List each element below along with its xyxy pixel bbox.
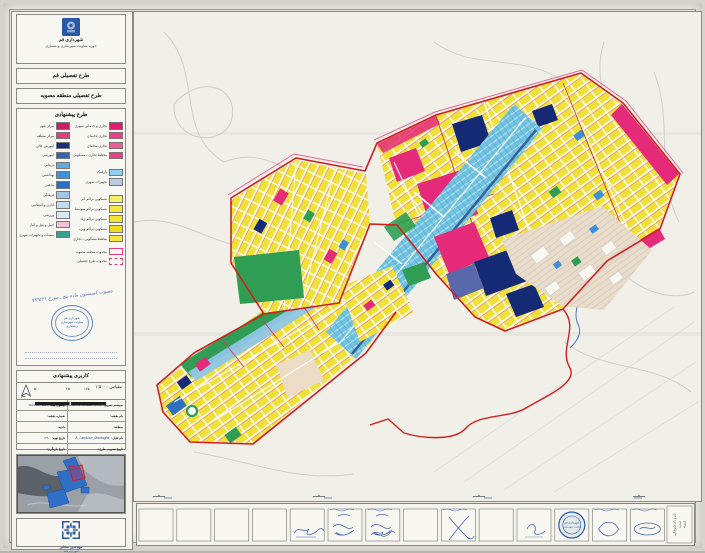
legend-color-swatch	[56, 181, 70, 189]
legend-item-label: درمانی	[44, 163, 54, 167]
title-block-sidebar: شهرداری قم حوزه معاونت شهرسازی و معماری …	[11, 11, 133, 550]
info-label: ناحیه:	[57, 425, 65, 429]
info-table-title: کاربری پیشنهادی	[17, 371, 125, 383]
info-table-cell: منطقه:	[67, 422, 125, 432]
zoning-map-drawing	[134, 12, 701, 501]
info-table-row: نام فایل:A_Landuse_Mantagheتاریخ تهیه:۱۳…	[17, 433, 125, 444]
legend-item: تجهیزات شهری	[72, 178, 123, 186]
info-table-cell: ناحیه:	[17, 422, 67, 432]
legend-color-swatch	[109, 248, 123, 256]
legend-item: اداری و انتظامی	[19, 201, 70, 209]
legend-item-label: پارکینگ	[97, 170, 107, 174]
svg-text:امضاء: امضاء	[683, 521, 687, 529]
plan-title-sub: طرح تفصیلی منطقه مصوبه	[16, 88, 126, 104]
info-label: نام فایل:	[111, 436, 123, 440]
legend-color-swatch	[56, 132, 70, 140]
scanned-map-photo: شهرداری قم حوزه معاونت شهرسازی و معماری …	[0, 0, 705, 551]
municipality-header: شهرداری قم حوزه معاونت شهرسازی و معماری	[16, 14, 126, 64]
scale-tick: ۵۰۰	[34, 387, 39, 391]
municipality-emblem-icon	[62, 18, 80, 36]
info-value: A_Landuse_Mantaghe	[75, 436, 109, 440]
legend-item: تجاری محله‌ای	[72, 142, 123, 150]
legend-item: مسکونی تراکم ویژه	[72, 225, 123, 233]
legend-color-swatch	[56, 122, 70, 130]
legend-color-swatch	[56, 171, 70, 179]
info-label: نام نقشه:	[110, 414, 123, 418]
strip-round-stamp: شهرداری قم معاونت شهرسازی	[559, 512, 585, 538]
svg-text:معاونت شهرسازی: معاونت شهرسازی	[563, 526, 581, 529]
legend-item-label: مذهبی	[45, 183, 54, 187]
legend-item: مرکز شهر	[19, 122, 70, 130]
info-table-row: منطقه:ناحیه:	[17, 422, 125, 433]
info-table-cell: تاریخ تصویب طرح:	[67, 444, 125, 454]
info-label: منطقه:	[113, 425, 123, 429]
scale-bar	[35, 393, 107, 411]
legend-item-label: مسکونی تراکم زیاد	[80, 217, 107, 221]
legend-color-swatch	[109, 142, 123, 150]
stamp-line: و معماری	[66, 325, 78, 329]
scale-label: مقیاس ۱:۵۰۰۰	[95, 384, 122, 390]
legend-color-swatch	[56, 142, 70, 150]
locator-inset-map	[16, 454, 126, 514]
legend-item: مذهبی	[19, 181, 70, 189]
legend-footnote-rule	[25, 358, 117, 359]
legend-color-swatch	[109, 132, 123, 140]
scale-tick: ۰	[103, 387, 105, 391]
legend-item: مسکونی تراکم کم	[72, 195, 123, 203]
legend-item-label: مرکز منطقه	[37, 134, 54, 138]
legend-color-swatch	[56, 191, 70, 199]
legend-color-swatch	[109, 122, 123, 130]
legend-color-swatch	[56, 221, 70, 229]
legend-item-label: مختلط مسکونی ـ تجاری	[73, 237, 107, 241]
info-label: تاریخ بازنگری:	[46, 447, 65, 451]
legend-item-label: مختلط تجاری ـ مسکونی	[73, 153, 107, 157]
legend-item: مسکونی تراکم متوسط	[72, 205, 123, 213]
legend-item-label: آموزشی	[42, 153, 54, 157]
info-table-panel: کاربری پیشنهادی مقیاس ۱:۵۰۰۰ ۵۰۰ ۲۵۰ ۱۲۵…	[16, 370, 126, 450]
legend-item-label: آموزش عالی	[36, 144, 54, 148]
legend-item: پارکینگ	[72, 169, 123, 177]
info-table-cell: شماره نقشه:	[17, 411, 67, 421]
legend-item: بهداشتی	[19, 171, 70, 179]
legend-item-label: بهداشتی	[42, 173, 54, 177]
svg-text:سمت: سمت	[678, 520, 682, 528]
legend-color-swatch	[109, 178, 123, 186]
inset-satellite-image	[17, 455, 125, 513]
consultant-subtitle: شهر و برنامه	[17, 549, 125, 553]
legend-item-label: اداری و انتظامی	[31, 203, 54, 207]
round-official-stamp: شهرداری قم معاونت شهرسازی و معماری	[51, 305, 93, 341]
legend-color-swatch	[109, 195, 123, 203]
plan-title-main: طرح تفصیلی قم	[16, 68, 126, 84]
legend-item: محدوده طرح تفصیلی	[19, 258, 123, 266]
legend-item-label: حمل و نقل و انبار	[30, 223, 54, 227]
kufic-square-logo-icon	[61, 521, 81, 539]
legend-item-label: مسکونی تراکم کم	[81, 197, 107, 201]
legend-item-label: محدوده طرح تفصیلی	[77, 259, 107, 263]
legend-item: مختلط مسکونی ـ تجاری	[72, 235, 123, 243]
legend-color-swatch	[56, 231, 70, 239]
info-label: شماره نقشه:	[47, 414, 65, 418]
legend-color-swatch	[56, 201, 70, 209]
legend-color-swatch	[56, 211, 70, 219]
legend-item: فرهنگی	[19, 191, 70, 199]
info-table-cell: نام نقشه:	[67, 411, 125, 421]
info-table-cell: تاریخ بازنگری:	[17, 444, 67, 454]
legend-footnote-rule	[25, 352, 117, 353]
svg-text:شهرداری قم: شهرداری قم	[564, 521, 579, 525]
legend-color-swatch	[109, 205, 123, 213]
legend-item: تجاری ناحیه‌ای	[72, 132, 123, 140]
info-label: تاریخ تصویب طرح:	[98, 447, 123, 451]
legend-color-swatch	[109, 152, 123, 160]
legend-color-swatch	[109, 215, 123, 223]
legend-color-swatch	[109, 169, 123, 177]
margin-tick	[153, 496, 165, 497]
consultant-logo-box: مهندسین مشاور شهر و برنامه	[16, 518, 126, 547]
info-table-cell: تاریخ تهیه:۱۳۹۰	[17, 433, 67, 443]
info-label: تاریخ تهیه:	[52, 436, 65, 440]
legend-item-label: تجاری محله‌ای	[87, 144, 107, 148]
legend-panel: طرح پیشنهادی مرکز شهرمرکز منطقهآموزش عال…	[16, 108, 126, 366]
info-table-row: تاریخ تصویب طرح:تاریخ بازنگری:	[17, 444, 125, 454]
legend-item-label: مسکونی تراکم متوسط	[75, 207, 107, 211]
scale-row: مقیاس ۱:۵۰۰۰ ۵۰۰ ۲۵۰ ۱۲۵ ۰ متر	[17, 383, 125, 400]
svg-text:نام و نام خانوادگی: نام و نام خانوادگی	[673, 513, 677, 536]
margin-tick	[313, 496, 325, 497]
legend-item: آموزش عالی	[19, 142, 70, 150]
legend-item: حمل و نقل و انبار	[19, 221, 70, 229]
map-sheet: شهرداری قم حوزه معاونت شهرسازی و معماری …	[3, 3, 702, 548]
legend-color-swatch	[109, 225, 123, 233]
approval-handwritten-note: مصوب کمیسیون ماده پنج ـ مورخ ۹۳/۷/۲۱	[21, 288, 123, 305]
legend-item: تاسیسات و تجهیزات شهری	[19, 231, 70, 239]
scale-tick: ۱۲۵	[84, 387, 89, 391]
legend-item: مرکز منطقه	[19, 132, 70, 140]
legend-item: محدوده منطقه مصوبه	[19, 248, 123, 256]
legend-item: مختلط تجاری ـ مسکونی	[72, 152, 123, 160]
zoning-map-area	[133, 11, 702, 502]
legend-item-label: تاسیسات و تجهیزات شهری	[19, 233, 54, 237]
legend-item: درمانی	[19, 162, 70, 170]
department-name: حوزه معاونت شهرسازی و معماری	[17, 44, 125, 48]
info-value: ۱۳۹۰	[44, 436, 50, 440]
scale-tick: ۲۵۰	[66, 387, 71, 391]
legend-item-label: تجهیزات شهری	[85, 180, 107, 184]
legend-color-swatch	[56, 162, 70, 170]
north-arrow-icon	[20, 384, 32, 402]
legend-column-right: تجاری و خدماتی شهریتجاری ناحیه‌ایتجاری م…	[72, 122, 123, 245]
legend-item-label: تجاری ناحیه‌ای	[87, 134, 107, 138]
legend-item: تجاری و خدماتی شهری	[72, 122, 123, 130]
legend-item-label: مسکونی تراکم ویژه	[79, 227, 107, 231]
legend-boundary-items: محدوده منطقه مصوبهمحدوده طرح تفصیلی	[17, 245, 125, 265]
legend-item-label: تجاری و خدماتی شهری	[75, 124, 107, 128]
legend-column-left: مرکز شهرمرکز منطقهآموزش عالیآموزشیدرمانی…	[19, 122, 70, 245]
legend-item-label: مرکز شهر	[40, 124, 54, 128]
info-table-row: نام نقشه:شماره نقشه:	[17, 411, 125, 422]
organization-name: شهرداری قم	[17, 37, 125, 43]
legend-item: مسکونی تراکم زیاد	[72, 215, 123, 223]
margin-tick	[473, 496, 485, 497]
legend-item-label: محدوده منطقه مصوبه	[76, 250, 107, 254]
legend-item-label: ورزشی	[43, 213, 54, 217]
legend-item: آموزشی	[19, 152, 70, 160]
info-table-cell: نام فایل:A_Landuse_Mantaghe	[67, 433, 125, 443]
signature-strip: شهرداری قم معاونت شهرسازی نام و نام خانو…	[136, 503, 695, 546]
legend-color-swatch	[109, 235, 123, 243]
central-park	[234, 250, 304, 304]
legend-columns: مرکز شهرمرکز منطقهآموزش عالیآموزشیدرمانی…	[17, 118, 125, 245]
legend-color-swatch	[56, 152, 70, 160]
legend-title: طرح پیشنهادی	[17, 109, 125, 118]
legend-color-swatch	[109, 258, 123, 266]
roundabout	[187, 406, 197, 416]
margin-tick	[633, 496, 645, 497]
legend-item: ورزشی	[19, 211, 70, 219]
legend-item-label: فرهنگی	[43, 193, 54, 197]
